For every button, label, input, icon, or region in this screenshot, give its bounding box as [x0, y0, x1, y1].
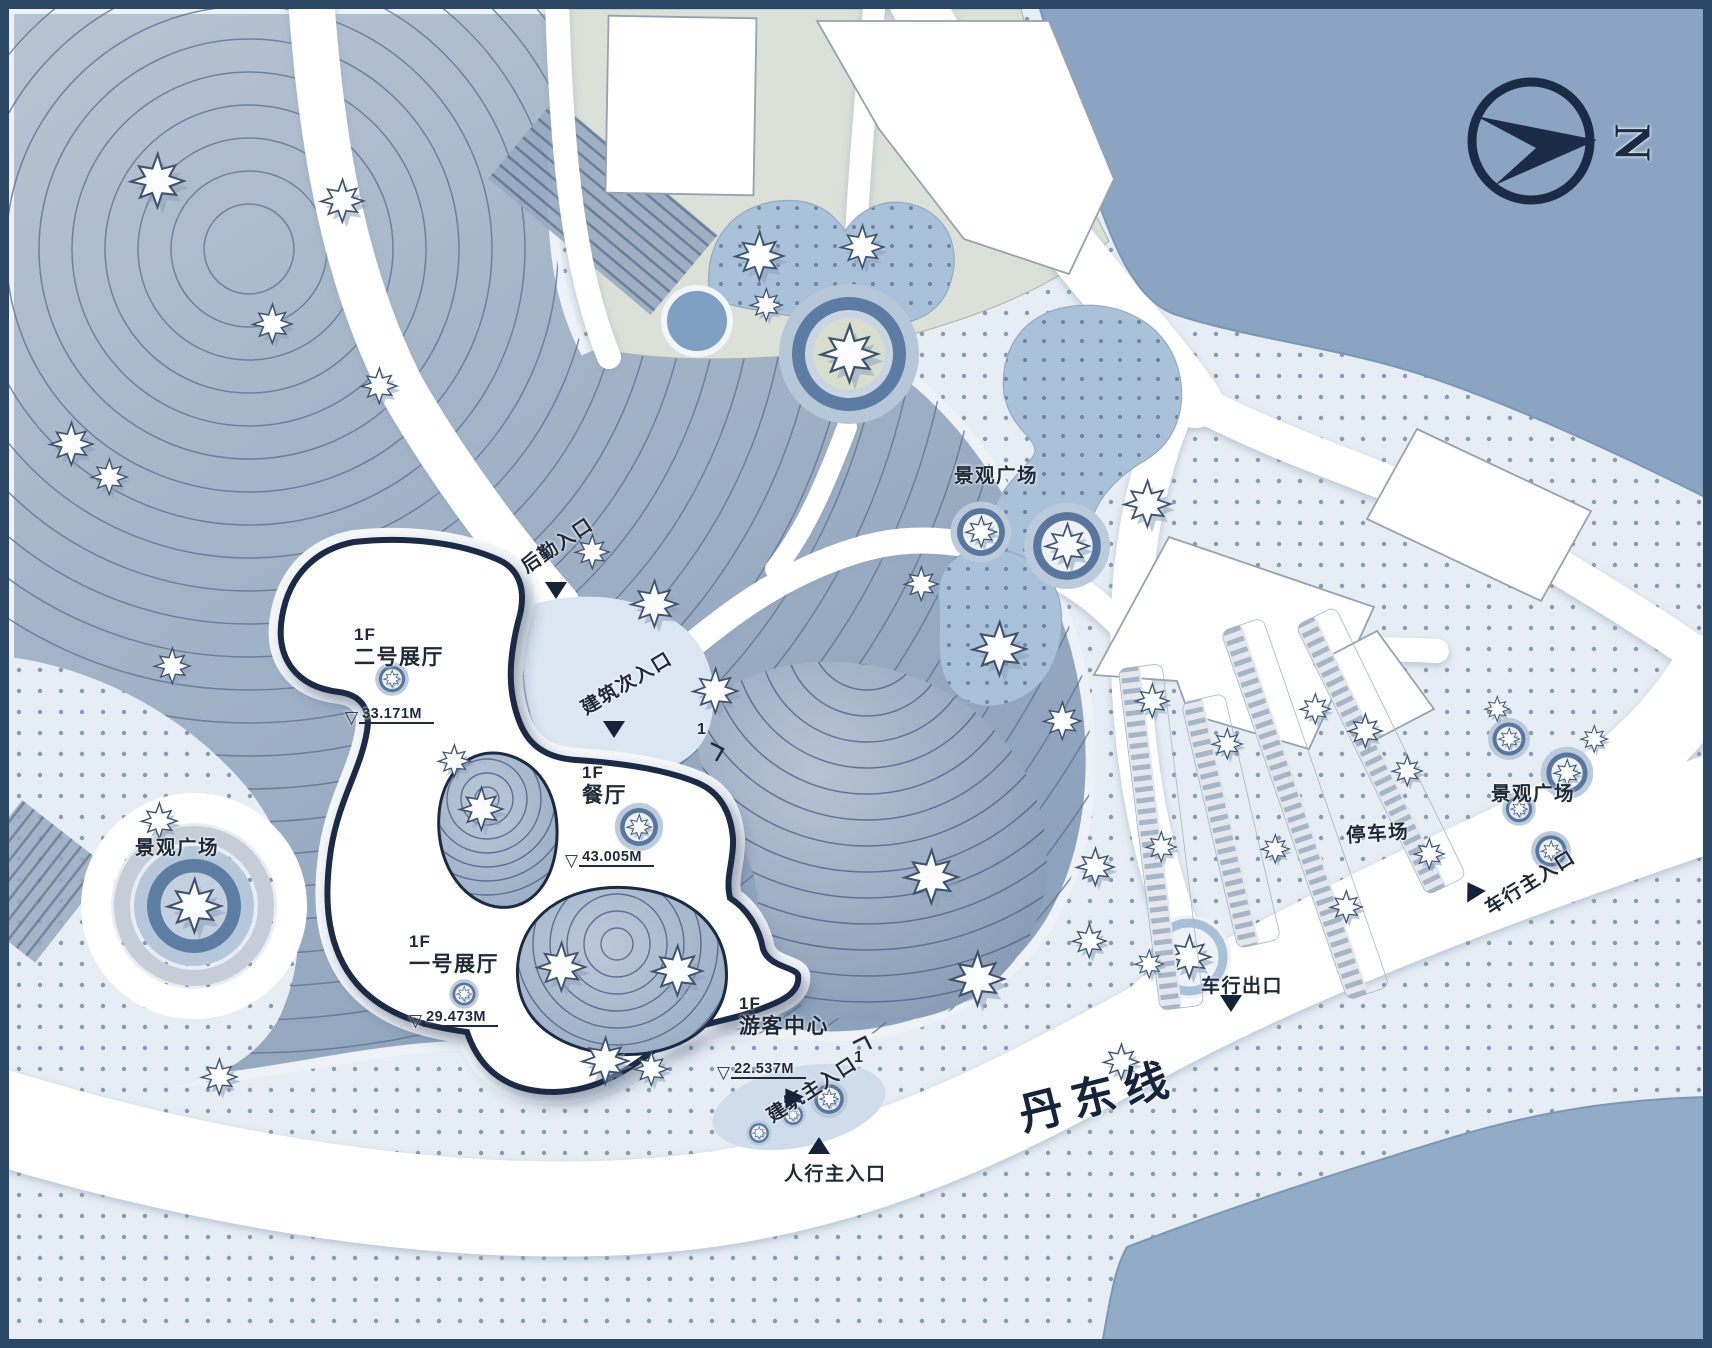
- logistics-entrance-marker-icon: [545, 582, 567, 599]
- elevation-dining: ▽ 43.005M: [565, 849, 654, 867]
- label-plaza-north: 景观广场: [954, 459, 1038, 488]
- pedestrian-entrance-marker-icon: [808, 1137, 830, 1154]
- site-plan-drawing: [9, 9, 1703, 1339]
- label-plaza-east: 景观广场: [1491, 777, 1575, 806]
- section-marker-2: 1: [854, 1049, 863, 1067]
- secondary-entrance-marker-icon: [603, 721, 625, 738]
- label-parking: 停车场: [1345, 815, 1410, 848]
- pond: [664, 288, 730, 354]
- site-plan: N 1F 二号展厅 ▽ 33.171M 1F 餐厅 ▽ 43.005M 1F 一…: [0, 0, 1712, 1348]
- label-plaza-west: 景观广场: [135, 831, 219, 860]
- section-marker-1: 1: [697, 721, 706, 739]
- hall2-name: 二号展厅: [354, 645, 444, 671]
- elevation-marker-icon: ▽: [717, 1066, 730, 1079]
- dining-planter: [615, 803, 663, 851]
- visitor-name: 游客中心: [739, 1014, 829, 1040]
- label-visitor: 1F 游客中心: [739, 993, 829, 1041]
- north-letter: N: [1602, 124, 1661, 162]
- elevation-hall1: ▽ 29.473M: [409, 1009, 498, 1027]
- hall1-elevation: 29.473M: [423, 1009, 498, 1027]
- elevation-marker-icon: ▽: [409, 1014, 422, 1027]
- plaza-circle-north: [779, 284, 919, 424]
- label-hall1: 1F 一号展厅: [409, 931, 499, 979]
- label-pedestrian-entrance: 人行主入口: [784, 1159, 887, 1186]
- elevation-marker-icon: ▽: [345, 711, 358, 724]
- dining-name: 餐厅: [582, 783, 627, 809]
- hall1-planter: [449, 979, 478, 1008]
- elevation-hall2: ▽ 33.171M: [345, 706, 434, 724]
- elevation-marker-icon: ▽: [565, 854, 578, 867]
- dining-elevation: 43.005M: [579, 849, 654, 867]
- hall2-elevation: 33.171M: [359, 706, 434, 724]
- tree-planter: [1024, 503, 1110, 589]
- hall2-floor: 1F: [354, 624, 444, 645]
- dining-floor: 1F: [582, 762, 627, 783]
- vehicle-exit-marker-icon: [1220, 995, 1242, 1012]
- tree-planter: [951, 502, 1012, 563]
- elevation-visitor: ▽ 22.537M: [717, 1061, 806, 1079]
- label-vehicle-exit: 车行出口: [1201, 971, 1283, 998]
- building-block-1: [605, 16, 756, 196]
- label-dining: 1F 餐厅: [582, 762, 627, 810]
- hall1-name: 一号展厅: [409, 952, 499, 978]
- hall1-floor: 1F: [409, 931, 499, 952]
- label-hall2: 1F 二号展厅: [354, 624, 444, 672]
- visitor-elevation: 22.537M: [731, 1061, 806, 1079]
- visitor-floor: 1F: [739, 993, 829, 1014]
